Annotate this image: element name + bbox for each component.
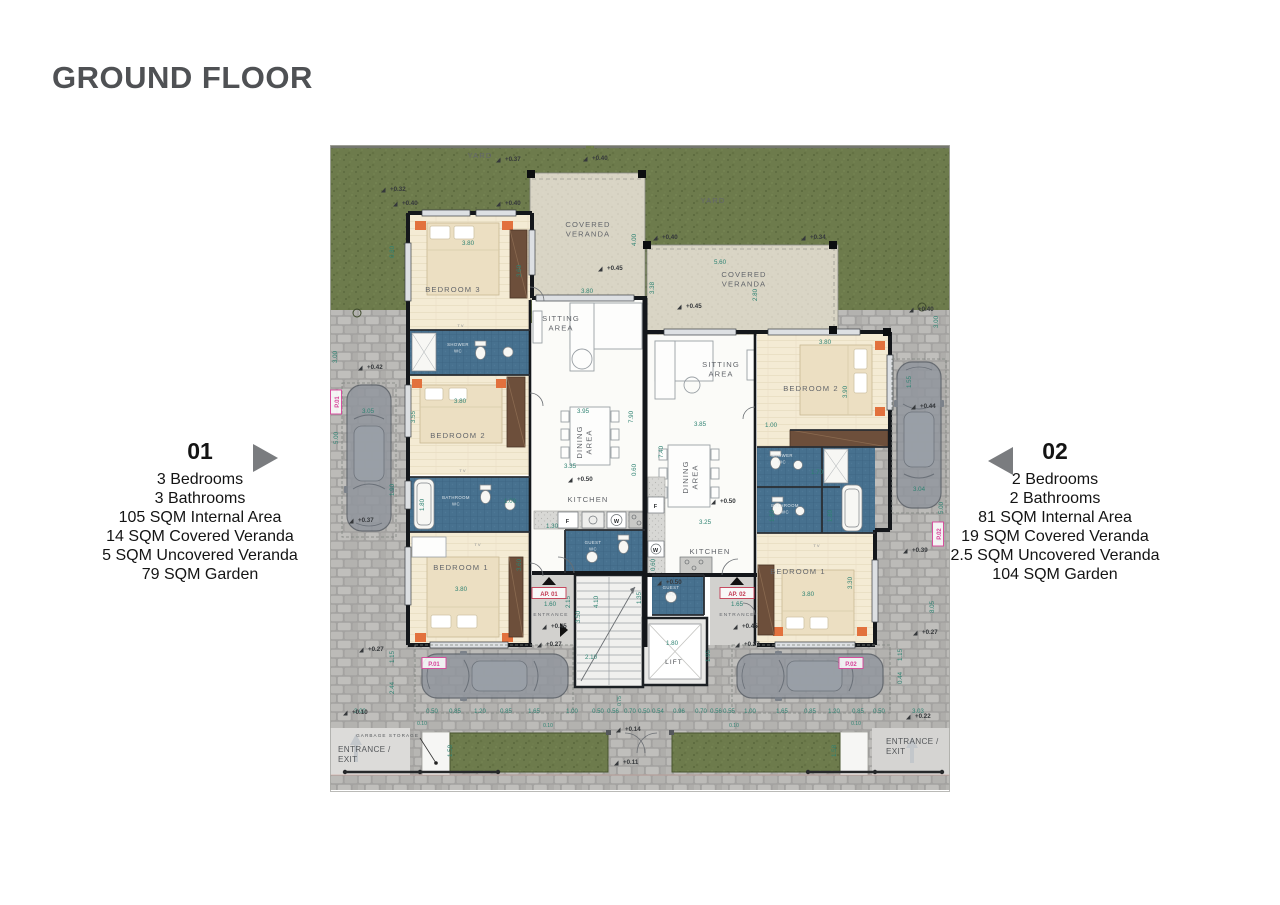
level-label: +0.27 <box>368 646 384 653</box>
level-label: +0.45 <box>742 623 758 630</box>
dimension-label: 3.80 <box>455 586 468 593</box>
hedge-left <box>450 733 608 772</box>
fridge-label: F <box>566 519 570 525</box>
apartment-01-specs: 3 Bedrooms3 Bathrooms105 SQM Internal Ar… <box>90 470 310 584</box>
level-label: +0.42 <box>367 364 383 371</box>
covered-veranda-02 <box>647 245 838 335</box>
dimension-label: 0.10 <box>851 721 861 727</box>
lift-label: LIFT <box>665 659 683 666</box>
dimension-label: 3.25 <box>699 519 712 526</box>
kitchen-01-label: KITCHEN <box>567 495 608 504</box>
parking-02-tag: P.02 <box>937 528 943 540</box>
level-label: +0.50 <box>666 579 682 586</box>
parking-01-tag: P.01 <box>428 662 440 668</box>
ap-01-tag: AP. 01 <box>540 592 558 598</box>
dimension-label: 3.00 <box>332 350 339 363</box>
level-label: +0.50 <box>720 498 736 505</box>
dimension-label: 1.00 <box>504 498 517 505</box>
dimension-label: 0.44 <box>897 671 904 684</box>
spec-line: 3 Bathrooms <box>90 489 310 508</box>
dimension-label: 5.00 <box>938 501 945 514</box>
dimension-chain-label: 0.50 <box>873 709 885 715</box>
dimension-label: 3.50 <box>575 610 582 623</box>
room-guest-wc-01 <box>565 530 645 573</box>
dimension-label: 3.30 <box>847 576 854 589</box>
level-label: +0.14 <box>625 726 641 733</box>
spec-line: 79 SQM Garden <box>90 565 310 584</box>
spec-line: 2 Bedrooms <box>945 470 1165 489</box>
bedroom1-01-label: BEDROOM 1 <box>433 563 488 572</box>
spec-line: 81 SQM Internal Area <box>945 508 1165 527</box>
dimension-label: 2.10 <box>585 654 598 661</box>
spec-line: 104 SQM Garden <box>945 565 1165 584</box>
level-label: +0.40 <box>402 200 418 207</box>
dimension-label: 3.04 <box>913 486 926 493</box>
dimension-label: 1.65 <box>731 601 744 608</box>
washer-label: W <box>653 548 659 554</box>
dimension-label: 2.44 <box>389 681 396 694</box>
dimension-label: 3.90 <box>842 385 849 398</box>
parking-02-tag: P.02 <box>845 662 857 668</box>
porch-01 <box>530 575 575 645</box>
tv-label: TV <box>457 323 464 328</box>
dimension-chain-label: 0.54 <box>652 709 664 715</box>
dimension-label: 7.40 <box>658 445 665 458</box>
lift <box>643 618 707 685</box>
level-label: +0.40 <box>662 234 678 241</box>
dimension-label: 2.80 <box>752 288 759 301</box>
dimension-label: 0.60 <box>631 463 638 476</box>
level-label: +0.45 <box>551 623 567 630</box>
level-label: +0.11 <box>623 759 639 766</box>
dimension-chain-label: 0.56 <box>607 709 619 715</box>
entrance-02-label: ENTRANCE <box>719 612 754 618</box>
dimension-label: 1.80 <box>769 509 776 522</box>
dimension-chain-label: 1.65 <box>528 709 540 715</box>
ap-02-tag: AP. 02 <box>728 592 746 598</box>
spec-line: 105 SQM Internal Area <box>90 508 310 527</box>
dimension-chain-label: 1.00 <box>744 709 756 715</box>
fridge-label: F <box>654 504 658 510</box>
dimension-label: 1.60 <box>544 601 557 608</box>
garbage-storage-box <box>422 732 450 775</box>
covered-veranda-01-label: COVEREDVERANDA <box>565 220 610 239</box>
dimension-label: 1.15 <box>897 648 904 661</box>
dimension-label: 3.60 <box>516 558 523 571</box>
level-label: +0.37 <box>505 156 521 163</box>
dimension-label: 8.05 <box>929 600 936 613</box>
dimension-label: 0.10 <box>543 723 553 729</box>
apartment-02-specs: 2 Bedrooms2 Bathrooms81 SQM Internal Are… <box>945 470 1165 584</box>
dimension-label: 1.90 <box>389 483 396 496</box>
dimension-chain-label: 1.20 <box>828 709 840 715</box>
dimension-label: 1.58 <box>447 744 454 757</box>
dimension-chain-label: 0.50 <box>638 709 650 715</box>
dimension-chain-label: 0.70 <box>695 709 707 715</box>
covered-veranda-02-label: COVEREDVERANDA <box>721 270 766 289</box>
level-label: +0.27 <box>546 641 562 648</box>
bedroom2-01-label: BEDROOM 2 <box>430 431 485 440</box>
dimension-label: 7.90 <box>628 410 635 423</box>
spec-line: 3 Bedrooms <box>90 470 310 489</box>
dimension-label: 0.10 <box>729 723 739 729</box>
dimension-chain-label: 1.65 <box>776 709 788 715</box>
bed-bedroom3-01 <box>415 221 513 295</box>
floor-plan-svg: YARDYARDCOVEREDVERANDACOVEREDVERANDASITT… <box>330 145 950 793</box>
level-label: +0.40 <box>505 200 521 207</box>
dimension-label: 3.80 <box>581 288 594 295</box>
dimension-label: 1.55 <box>906 375 913 388</box>
dimension-label: 0.10 <box>417 721 427 727</box>
level-label: +0.40 <box>592 155 608 162</box>
dimension-chain-label: 1.20 <box>474 709 486 715</box>
dining-area-02-label: DININGAREA <box>681 460 700 493</box>
bedroom1-02-label: BEDROOM 1 <box>770 567 825 576</box>
level-label: +0.22 <box>915 713 931 720</box>
yard-label: YARD <box>701 196 726 205</box>
level-label: +0.45 <box>686 303 702 310</box>
apartment-02-number: 02 <box>945 438 1165 465</box>
dimension-chain-label: 1.00 <box>566 709 578 715</box>
dimension-chain-label: 0.85 <box>852 709 864 715</box>
dimension-label: 1.95 <box>705 649 712 662</box>
dimension-label: 1.70 <box>811 469 824 476</box>
dimension-chain-label: 0.50 <box>426 709 438 715</box>
parking-01-tag: P.01 <box>335 396 341 408</box>
dimension-chain-label: 0.85 <box>449 709 461 715</box>
dimension-label: 3.85 <box>694 421 707 428</box>
level-label: +0.37 <box>358 517 374 524</box>
dimension-chain-label: 0.50 <box>592 709 604 715</box>
dimension-label: 3.95 <box>577 408 590 415</box>
page-title: GROUND FLOOR <box>52 60 313 96</box>
level-label: +0.50 <box>577 476 593 483</box>
dimension-label: 5.00 <box>333 431 340 444</box>
dimension-label: 4.00 <box>631 233 638 246</box>
level-label: +0.45 <box>607 265 623 272</box>
dimension-chain-label: 0.85 <box>500 709 512 715</box>
dimension-label: 3.00 <box>933 315 940 328</box>
garbage-storage-label: GARBAGE STORAGE <box>356 733 419 738</box>
dimension-label: 1.58 <box>831 744 838 757</box>
dining-area-01-label: DININGAREA <box>575 425 594 458</box>
dimension-label: 3.80 <box>454 398 467 405</box>
dimension-label: 1.80 <box>666 640 679 647</box>
dimension-label: 3.80 <box>802 591 815 598</box>
level-label: +0.27 <box>744 641 760 648</box>
tv-label: TV <box>459 468 466 473</box>
level-label: +0.34 <box>810 234 826 241</box>
spec-line: 19 SQM Covered Veranda <box>945 527 1165 546</box>
level-label: +0.32 <box>390 186 406 193</box>
dimension-label: 1.80 <box>419 498 426 511</box>
washer-label: W <box>614 519 620 525</box>
dimension-label: 5.60 <box>714 259 727 266</box>
bed-bedroom2-02 <box>800 341 885 416</box>
spec-line: 2.5 SQM Uncovered Veranda <box>945 546 1165 565</box>
kitchen-02-label: KITCHEN <box>689 547 730 556</box>
porch-02 <box>710 575 755 645</box>
dimension-label: 0.80 <box>389 245 396 258</box>
floor-plan: YARDYARDCOVEREDVERANDACOVEREDVERANDASITT… <box>330 145 950 793</box>
dimension-label: 1.15 <box>389 650 396 663</box>
level-label: +0.44 <box>920 403 936 410</box>
apartment-02-arrow-icon <box>988 447 1013 475</box>
dimension-label: 4.10 <box>593 595 600 608</box>
apartment-01-arrow-icon <box>253 444 278 472</box>
dimension-label: 3.60 <box>516 264 523 277</box>
level-label: +0.10 <box>352 709 368 716</box>
bedroom3-01-label: BEDROOM 3 <box>425 285 480 294</box>
spec-line: 5 SQM Uncovered Veranda <box>90 546 310 565</box>
dimension-chain-label: 0.70 <box>624 709 636 715</box>
dimension-label: 1.35 <box>636 591 643 604</box>
dimension-label: 1.80 <box>827 509 834 522</box>
dimension-label: 3.80 <box>819 339 832 346</box>
dimension-label: 1.00 <box>765 422 778 429</box>
dimension-chain-label: 0.55 <box>723 709 735 715</box>
car-left <box>344 385 394 531</box>
bedroom2-02-label: BEDROOM 2 <box>783 384 838 393</box>
entrance-01-label: ENTRANCE <box>533 612 568 618</box>
tv-label: TV <box>813 543 820 548</box>
tv-label: TV <box>474 542 481 547</box>
hedge-right <box>672 733 840 772</box>
yard-label: YARD <box>468 151 493 160</box>
spec-line: 14 SQM Covered Veranda <box>90 527 310 546</box>
dimension-label: 0.60 <box>650 558 657 571</box>
level-label: +0.27 <box>922 629 938 636</box>
dimension-chain-label: 0.96 <box>673 709 685 715</box>
storage-box-right <box>840 732 868 775</box>
dimension-label: 3.55 <box>410 410 417 423</box>
dimension-chain-label: 0.56 <box>710 709 722 715</box>
dimension-label: 1.30 <box>546 523 559 530</box>
dimension-chain-label: 0.85 <box>804 709 816 715</box>
level-label: +0.39 <box>912 547 928 554</box>
apartment-02-info: 02 2 Bedrooms2 Bathrooms81 SQM Internal … <box>945 438 1165 584</box>
dimension-label: 0.75 <box>617 696 623 706</box>
dimension-label: 3.35 <box>564 463 577 470</box>
level-label: +0.40 <box>918 306 934 313</box>
dimension-label: 3.05 <box>362 408 375 415</box>
spec-line: 2 Bathrooms <box>945 489 1165 508</box>
dimension-label: 3.80 <box>462 240 475 247</box>
dimension-label: 3.38 <box>649 281 656 294</box>
